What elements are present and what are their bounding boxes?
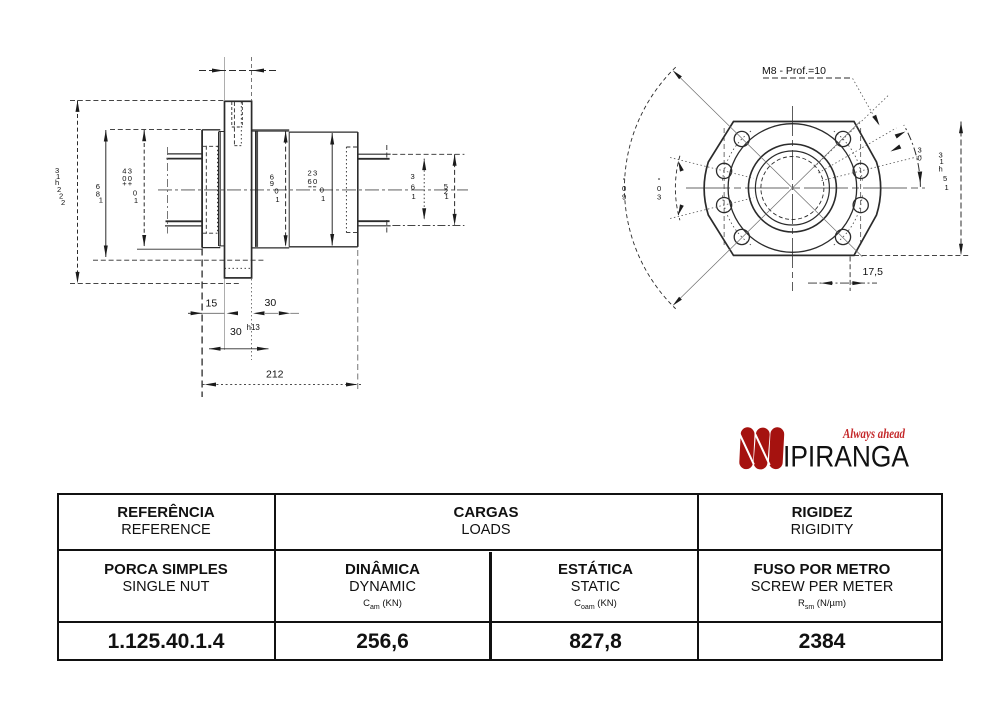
svg-text:+: + [128,179,133,188]
svg-text:+: + [122,179,127,188]
svg-text:1: 1 [412,192,416,201]
svg-text:3: 3 [411,172,415,181]
svg-text:212: 212 [266,369,284,381]
svg-text:3: 3 [657,193,661,202]
svg-text:9: 9 [270,179,274,188]
svg-text:h13: h13 [247,323,261,332]
svg-text:IPIRANGA: IPIRANGA [783,440,909,473]
svg-text:M8 - Prof.=10: M8 - Prof.=10 [762,65,826,77]
svg-text:1: 1 [275,195,279,204]
svg-text:1: 1 [445,192,449,201]
svg-text:0: 0 [313,177,317,186]
svg-text:1: 1 [321,194,325,203]
svg-text:5: 5 [943,174,947,183]
svg-text:Always ahead: Always ahead [842,426,905,441]
svg-text:1: 1 [134,196,138,205]
svg-text:17,5: 17,5 [863,266,884,278]
svg-text:30: 30 [230,326,242,338]
svg-text:h: h [939,165,943,174]
svg-text:30: 30 [265,297,277,309]
svg-text:6: 6 [308,177,312,186]
svg-text:15: 15 [206,298,218,310]
svg-text:9: 9 [622,193,626,202]
svg-text:6: 6 [411,183,415,192]
svg-text:2: 2 [61,198,65,207]
svg-text:1: 1 [99,196,103,205]
svg-text:1: 1 [945,183,949,192]
svg-text:0: 0 [918,154,922,163]
